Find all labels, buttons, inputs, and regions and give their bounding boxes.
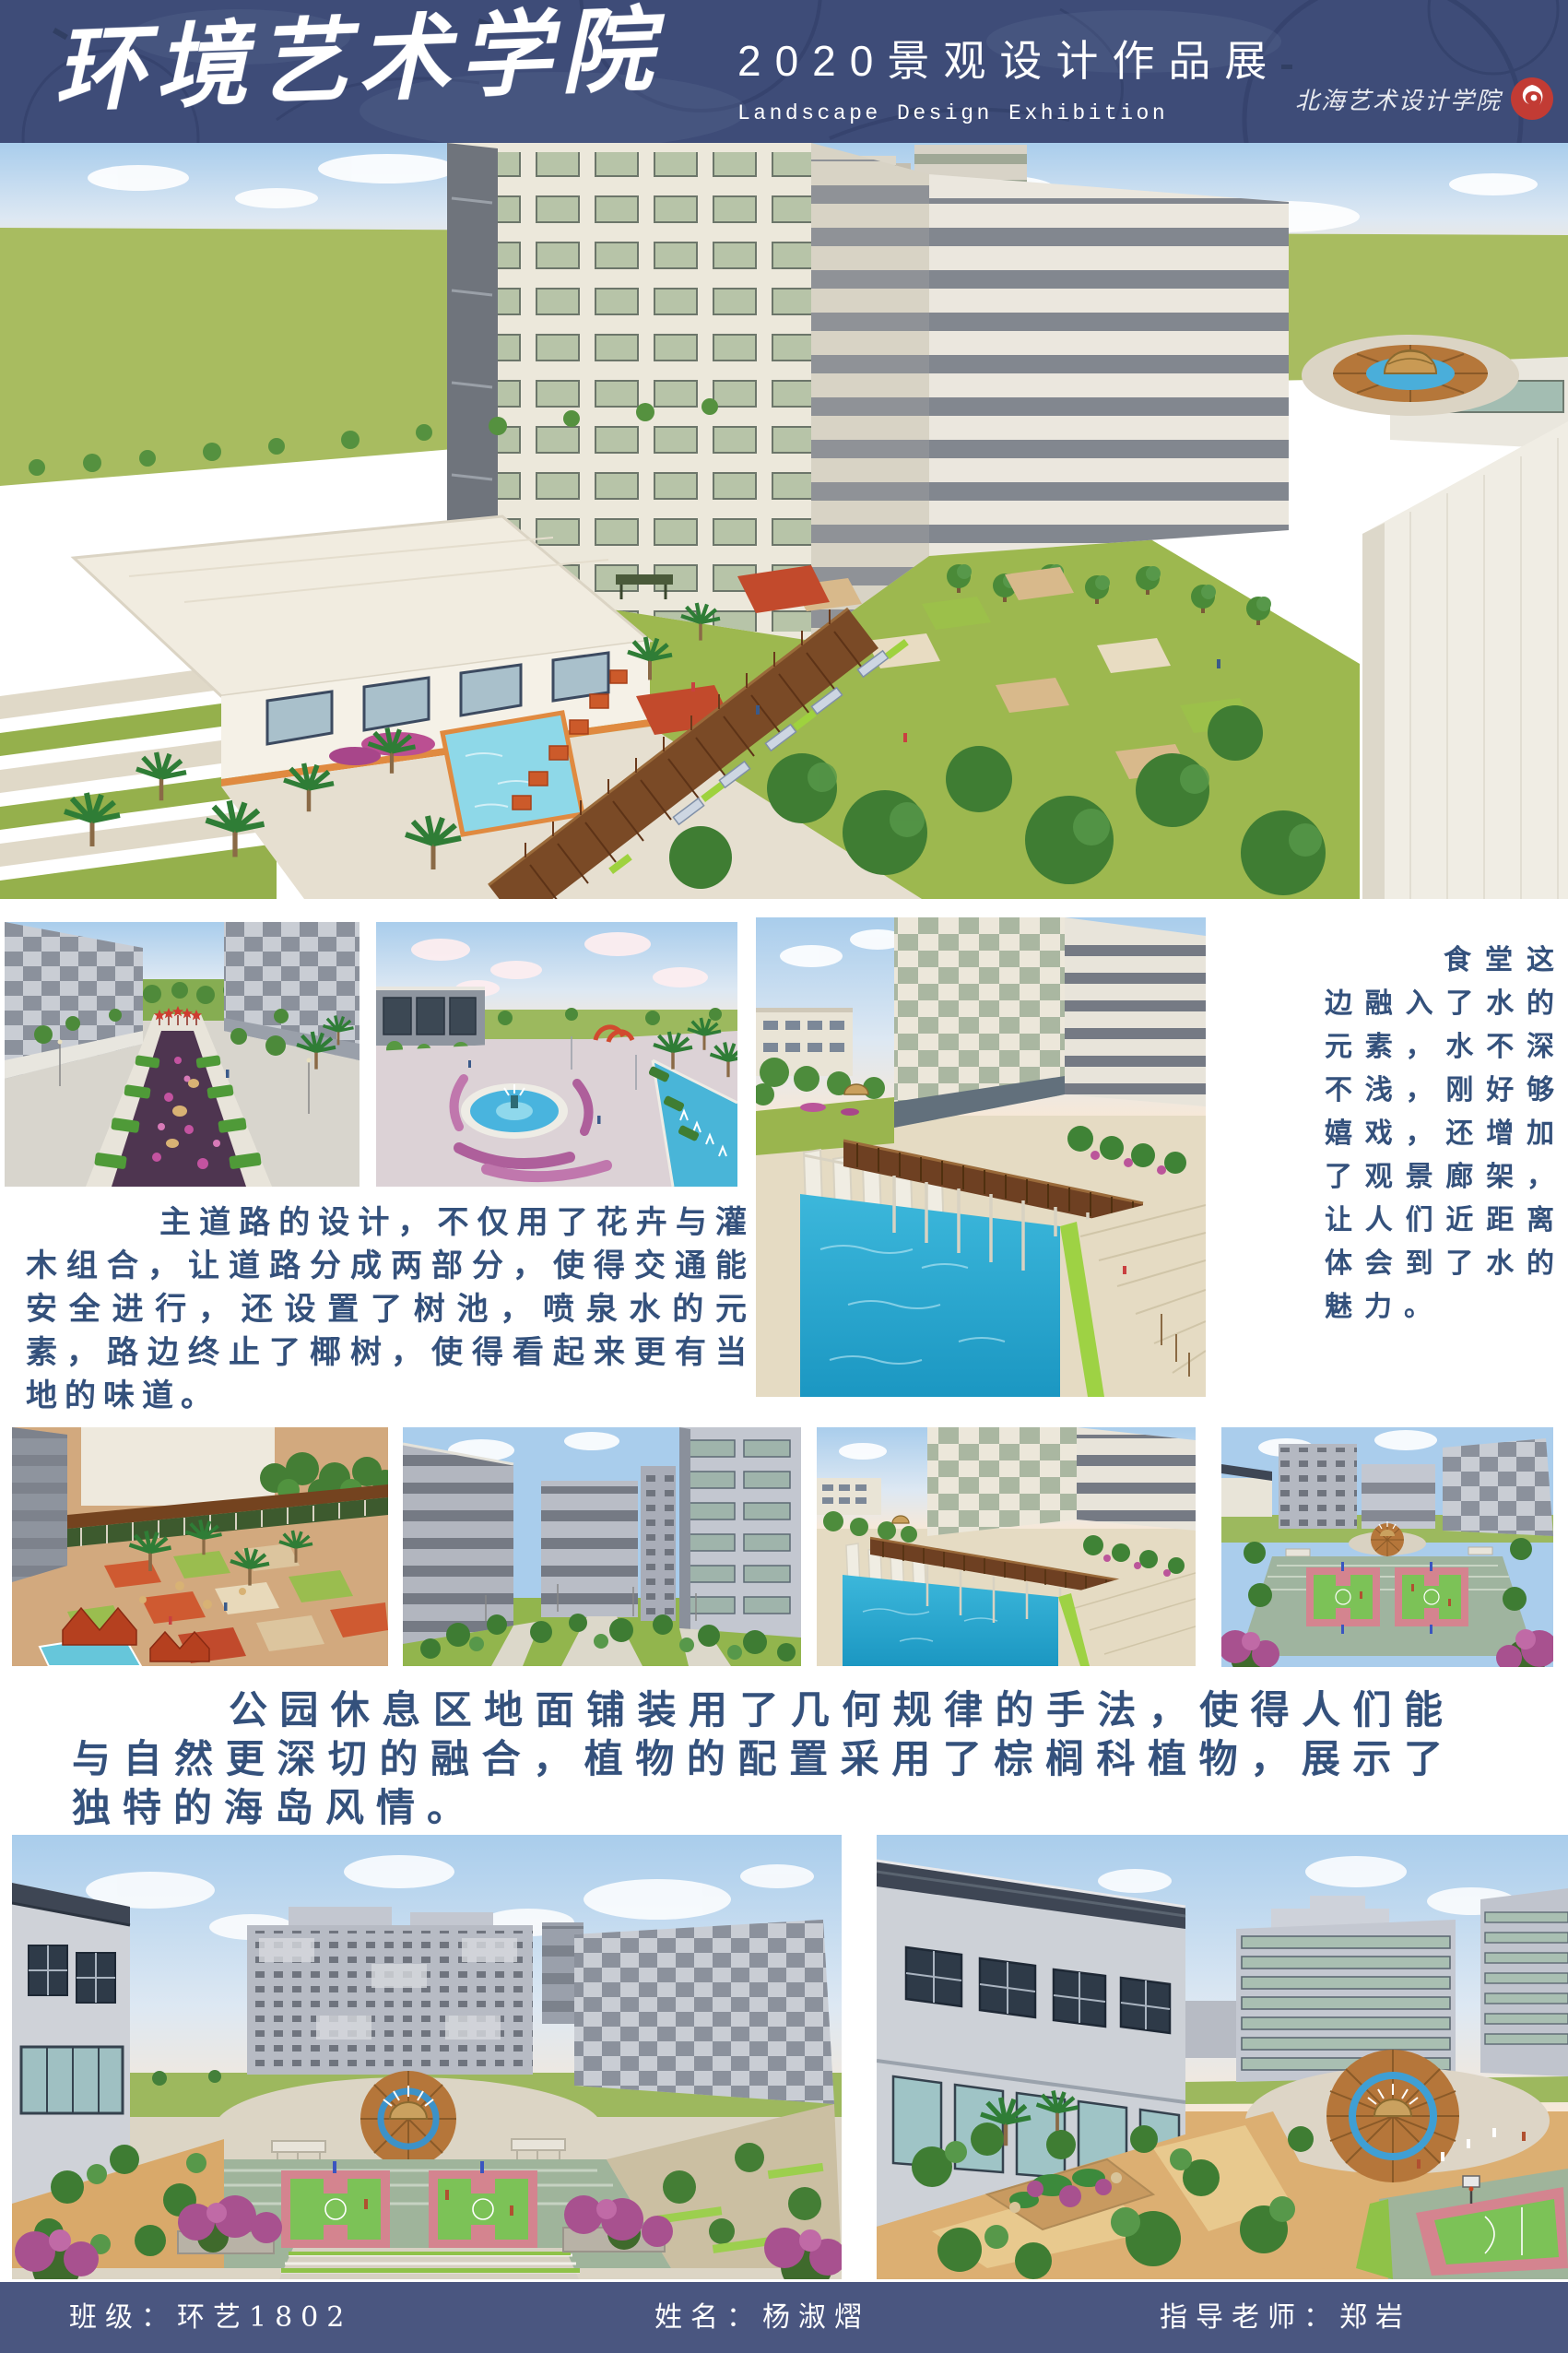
render-canteen-waterside-pergola	[756, 917, 1206, 1397]
render-main-road-flowerbeds	[5, 922, 360, 1187]
institute-seal-swirl-icon	[1509, 76, 1555, 122]
render-red-paving-plaza	[12, 1427, 388, 1666]
exhibition-poster: 环境艺术学院 2020景观设计作品展 Landscape Design Exhi…	[0, 0, 1568, 2353]
footer-student-name: 姓名：杨淑熠	[654, 2282, 870, 2353]
exhibition-title-en: Landscape Design Exhibition	[737, 101, 1280, 125]
header-banner: 环境艺术学院 2020景观设计作品展 Landscape Design Exhi…	[0, 0, 1568, 143]
institute-logo: 北海艺术设计学院	[1295, 76, 1555, 122]
paragraph-canteen-water: 食堂这边融入了水的元素，水不深不浅，刚好够嬉戏，还增加了观景廊架，让人们近距离体…	[1325, 939, 1566, 1329]
footer-advisor: 指导老师：郑岩	[1160, 2282, 1411, 2353]
exhibition-subtitle: 2020景观设计作品展 Landscape Design Exhibition	[737, 28, 1280, 125]
render-park-fountain-courtyard	[877, 1835, 1568, 2279]
render-sunken-basketball-plaza	[12, 1835, 842, 2279]
school-name-title: 环境艺术学院	[51, 0, 664, 142]
institute-name-calligraphy: 北海艺术设计学院	[1295, 82, 1502, 116]
paragraph-park-rest-area: 公园休息区地面铺装用了几何规律的手法，使得人们能与自然更深切的融合，植物的配置采…	[72, 1685, 1455, 1832]
render-basketball-courts-overview	[1221, 1427, 1553, 1667]
render-waterside-pergola-view2	[817, 1427, 1196, 1666]
render-fountain-plaza	[376, 922, 737, 1187]
paragraph-main-road: 主道路的设计，不仅用了花卉与灌木组合，让道路分成两部分，使得交通能安全进行，还设…	[26, 1201, 754, 1418]
exhibition-title-zh: 2020景观设计作品展	[737, 28, 1280, 89]
footer-class-info: 班级：环艺1802	[69, 2282, 352, 2353]
render-campus-aerial	[0, 143, 1568, 899]
footer-credits-bar: 班级：环艺1802 姓名：杨淑熠 指导老师：郑岩	[0, 2282, 1568, 2353]
render-courtyard-between-buildings	[403, 1427, 801, 1666]
